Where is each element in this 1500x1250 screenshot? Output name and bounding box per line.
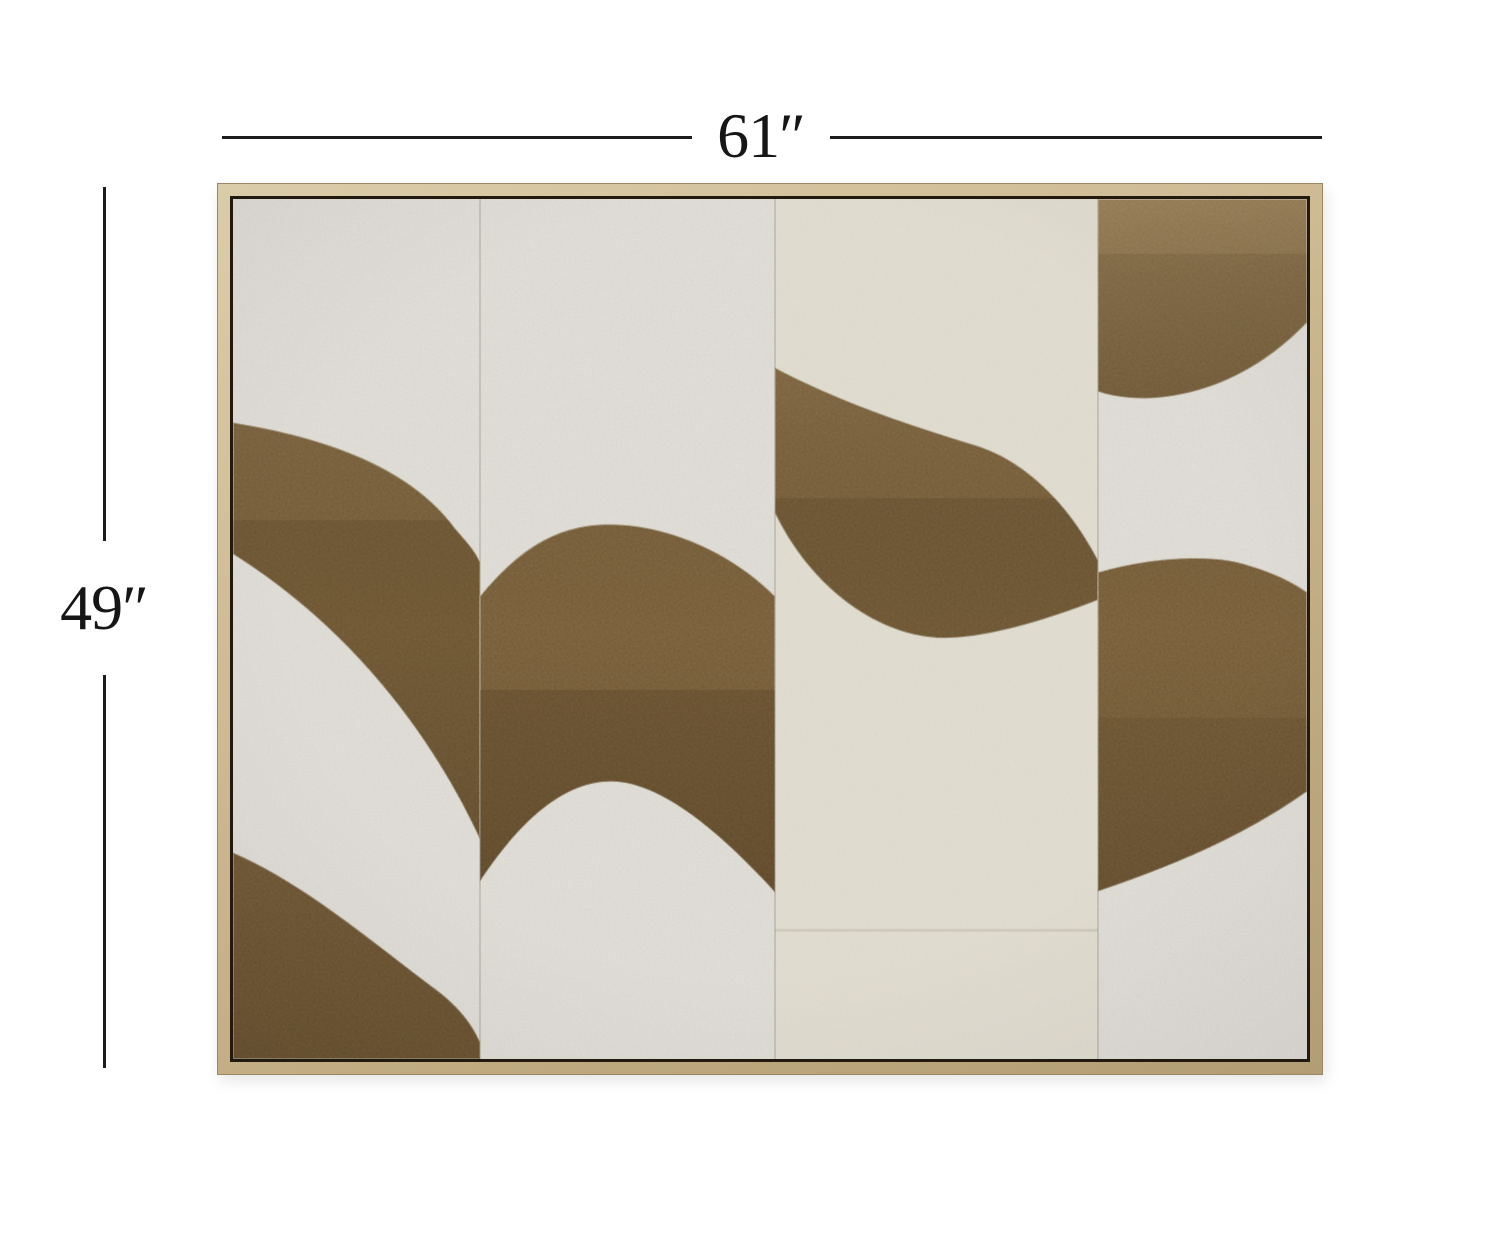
width-dimension-label: 61″ xyxy=(692,104,830,168)
product-dimension-diagram: 61″ 49″ xyxy=(0,0,1500,1250)
height-dimension-label: 49″ xyxy=(28,576,180,640)
width-dimension-line-right xyxy=(830,136,1322,139)
height-dimension-line-top xyxy=(103,187,106,541)
artwork-canvas xyxy=(233,199,1307,1059)
height-dimension-line-bottom xyxy=(103,675,106,1068)
width-dimension-line-left xyxy=(222,136,692,139)
frame-inner-shadow-gap xyxy=(230,196,1310,1062)
vignette-overlay xyxy=(233,199,1307,1059)
artwork-frame xyxy=(217,183,1323,1075)
